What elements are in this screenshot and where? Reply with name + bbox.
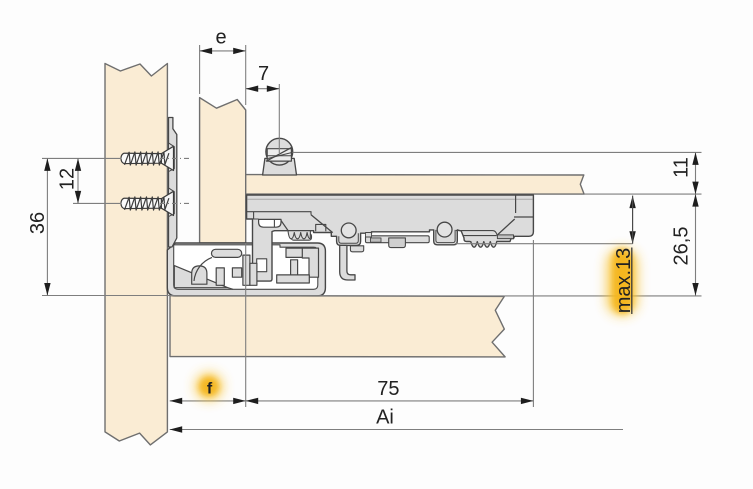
svg-text:12: 12 [57, 168, 79, 190]
svg-text:Ai: Ai [376, 407, 394, 429]
svg-text:36: 36 [27, 212, 49, 234]
svg-text:11: 11 [671, 157, 693, 178]
svg-text:75: 75 [377, 378, 399, 400]
svg-text:7: 7 [258, 63, 269, 85]
svg-text:max.13: max.13 [613, 248, 635, 314]
svg-text:f: f [207, 381, 213, 398]
svg-text:26,5: 26,5 [671, 227, 693, 266]
svg-text:e: e [215, 27, 226, 49]
